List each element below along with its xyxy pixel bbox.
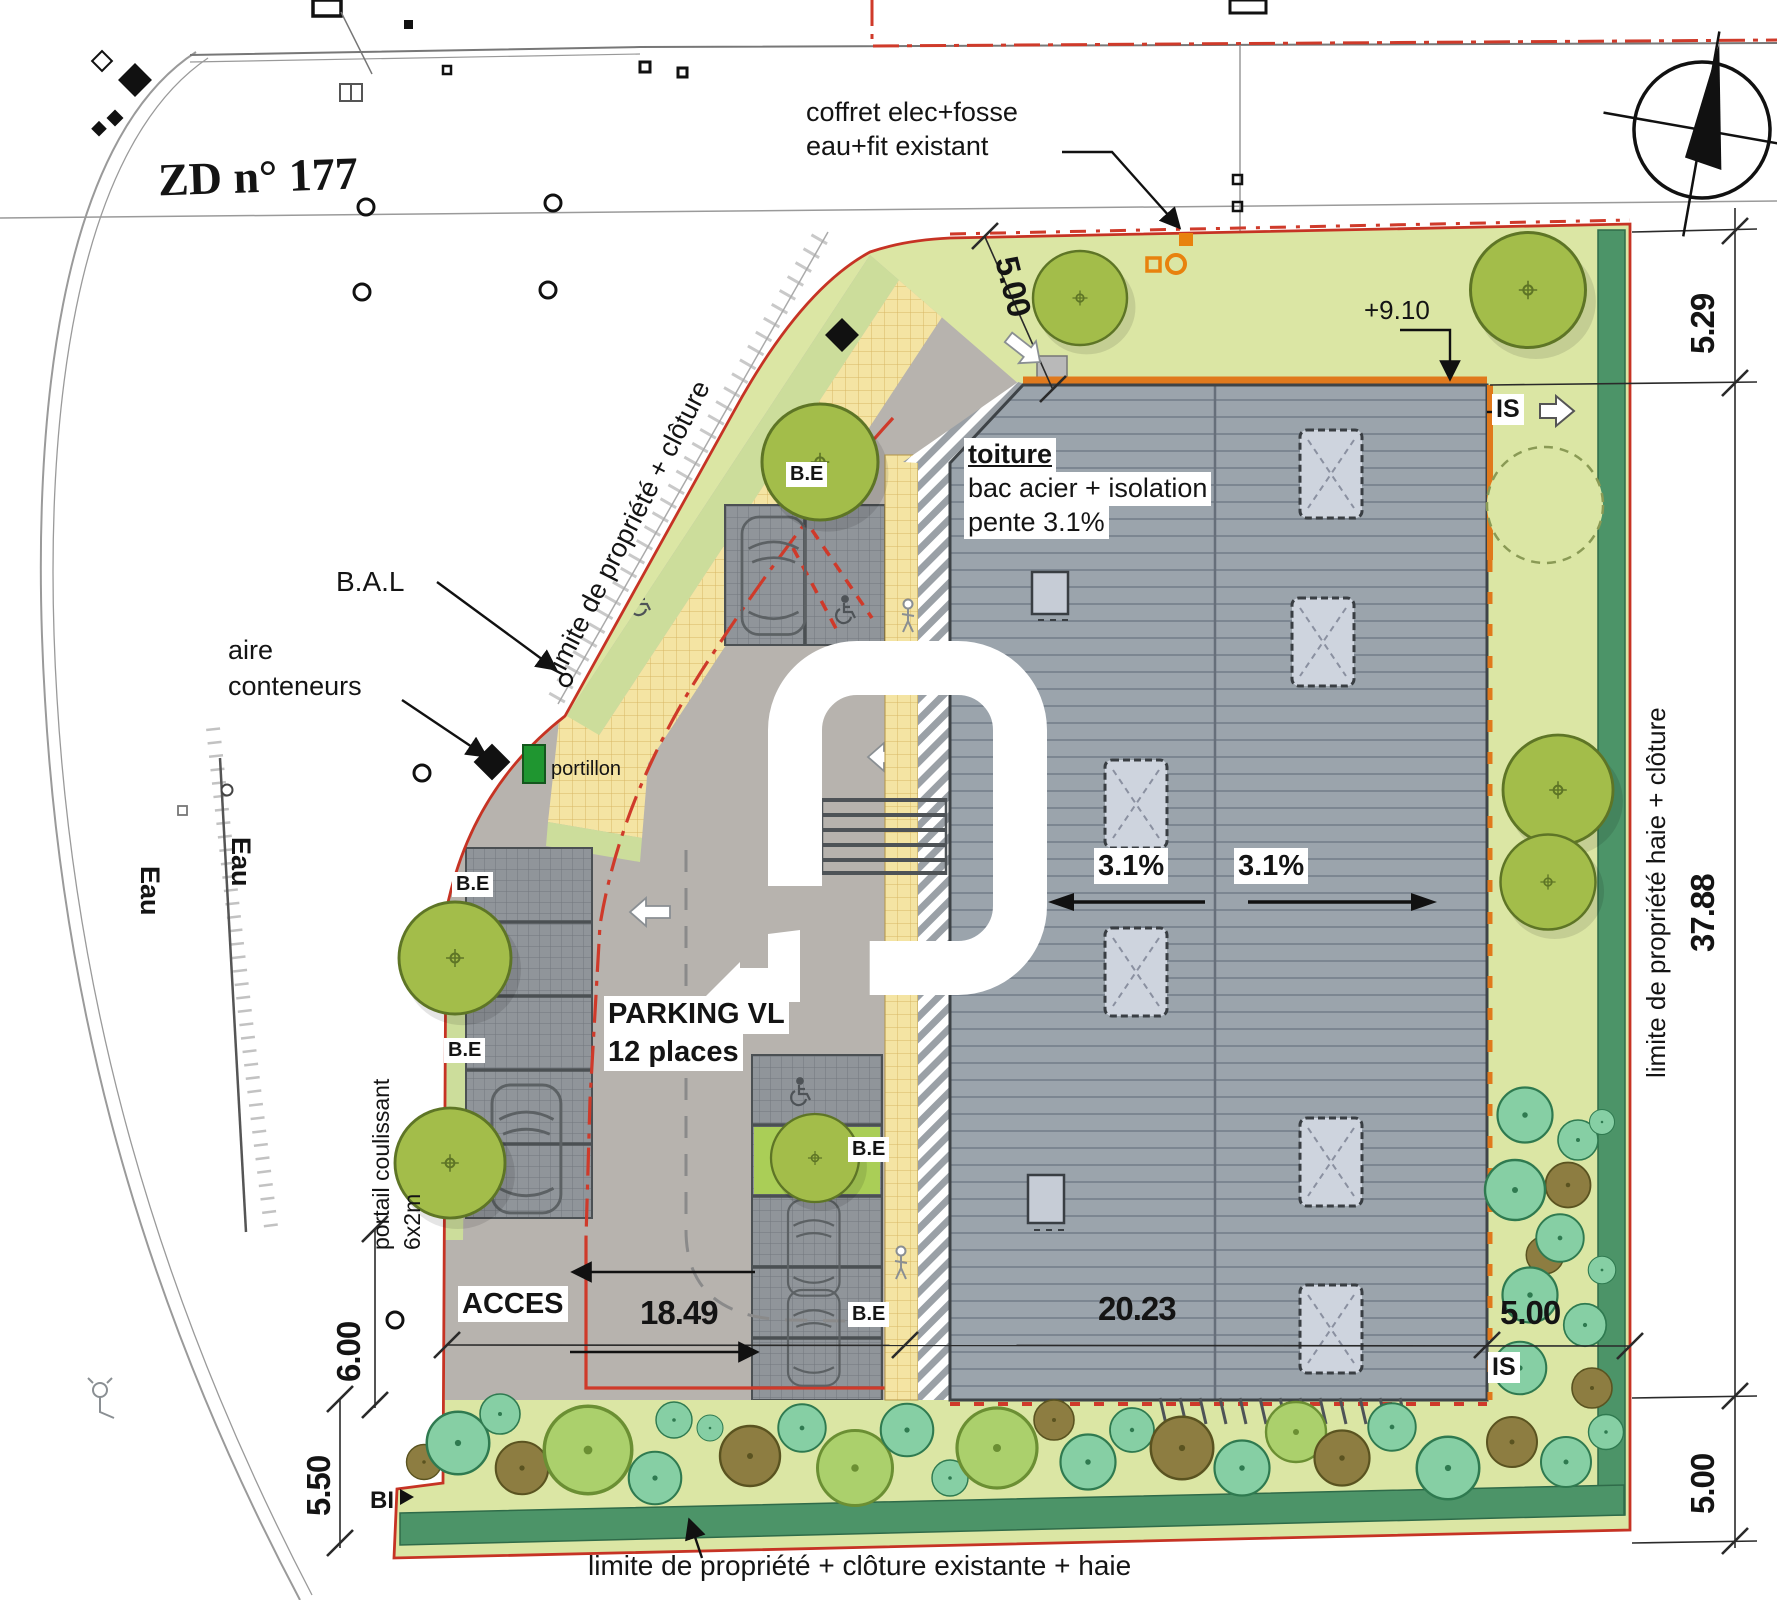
- containers-label: aire conteneurs: [228, 632, 362, 705]
- is-label-top: IS: [1492, 394, 1524, 425]
- slope-label-right: 3.1%: [1234, 848, 1308, 884]
- boundary-label-bottom: limite de propriété + clôture existante …: [588, 1548, 1131, 1583]
- gate-portillon-label: portillon: [551, 757, 621, 782]
- boundary-label-right: limite de propriété haie + clôture: [1640, 707, 1673, 1078]
- is-text: IS: [1488, 1352, 1520, 1383]
- dim-5-00-bottom: 5.00: [1500, 1292, 1560, 1333]
- roof-line2: bac acier + isolation: [964, 472, 1211, 506]
- dim-37-88: 37.88: [1682, 874, 1723, 952]
- roof-line3: pente 3.1%: [964, 506, 1109, 540]
- roof-level-label: +9.10: [1364, 294, 1430, 327]
- bi-label: BI: [370, 1486, 394, 1516]
- roof-annotation: toiture bac acier + isolation pente 3.1%: [964, 438, 1211, 539]
- dim-6-00: 6.00: [328, 1322, 369, 1382]
- parcel-number-label: ZD n° 177: [157, 145, 359, 209]
- is-text: IS: [1492, 394, 1524, 425]
- gate-line1: portail coulissant: [366, 1079, 397, 1250]
- dim-18-49: 18.49: [640, 1292, 718, 1333]
- is-label-bottom: IS: [1488, 1352, 1520, 1383]
- parking-line2: 12 places: [604, 1034, 743, 1072]
- gate-line2: 6x2m: [397, 1079, 428, 1250]
- dim-5-50: 5.50: [298, 1456, 339, 1516]
- north-arrow-icon: [1585, 14, 1777, 254]
- parking-line1: PARKING VL: [604, 996, 789, 1034]
- coffret-line1: coffret elec+fosse: [806, 96, 1018, 130]
- be-label-5: B.E: [848, 1302, 889, 1327]
- coffret-line2: eau+fit existant: [806, 130, 1018, 164]
- dim-5-29: 5.29: [1682, 294, 1723, 354]
- be-label-2: B.E: [452, 872, 493, 897]
- roof-title: toiture: [964, 438, 1056, 472]
- dim-5-00-right: 5.00: [1682, 1454, 1723, 1514]
- site-plan-page: ZD n° 177 coffret elec+fosse eau+fit exi…: [0, 0, 1777, 1600]
- be-label-1: B.E: [786, 462, 827, 487]
- coffret-annotation: coffret elec+fosse eau+fit existant: [806, 96, 1018, 164]
- be-label-4: B.E: [848, 1137, 889, 1162]
- slope-label-left: 3.1%: [1094, 848, 1168, 884]
- bal-label: B.A.L: [336, 564, 404, 599]
- containers-line2: conteneurs: [228, 668, 362, 704]
- water-label-1: Eau: [223, 837, 257, 887]
- dim-20-23: 20.23: [1098, 1288, 1176, 1329]
- be-label-3: B.E: [444, 1038, 485, 1063]
- access-label: ACCES: [458, 1286, 568, 1322]
- containers-line1: aire: [228, 632, 362, 668]
- parking-label: PARKING VL 12 places: [604, 996, 789, 1071]
- sliding-gate-label: portail coulissant 6x2m: [366, 1079, 428, 1250]
- water-label-2: Eau: [132, 866, 166, 916]
